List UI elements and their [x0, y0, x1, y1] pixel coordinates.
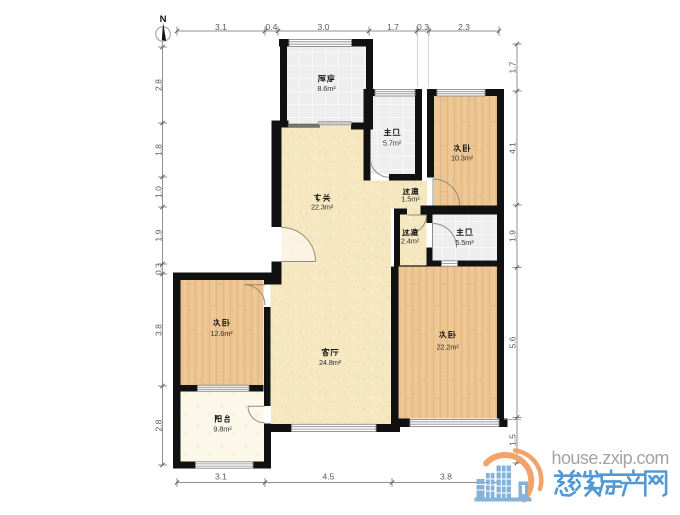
svg-text:3.1: 3.1	[215, 22, 227, 32]
svg-text:2.3: 2.3	[458, 22, 470, 32]
svg-text:house.zxip.com: house.zxip.com	[552, 448, 669, 468]
svg-text:3.8: 3.8	[154, 324, 164, 336]
svg-text:1.9: 1.9	[508, 230, 518, 242]
svg-text:2.8: 2.8	[154, 419, 164, 431]
svg-text:5.6: 5.6	[508, 336, 518, 348]
svg-text:0.4: 0.4	[266, 22, 278, 32]
svg-text:5.5m²: 5.5m²	[455, 238, 474, 247]
svg-text:8.6m²: 8.6m²	[317, 84, 336, 93]
svg-text:1.7: 1.7	[387, 22, 399, 32]
svg-text:1.9: 1.9	[154, 229, 164, 241]
svg-text:0.3: 0.3	[417, 22, 429, 32]
svg-text:3.0: 3.0	[318, 22, 330, 32]
svg-text:5.7m²: 5.7m²	[383, 139, 402, 148]
svg-text:2.8: 2.8	[154, 79, 164, 91]
svg-text:10.3m²: 10.3m²	[451, 153, 474, 162]
svg-text:3.8: 3.8	[440, 472, 452, 482]
svg-text:0.3: 0.3	[154, 263, 164, 275]
svg-text:1.8: 1.8	[154, 144, 164, 156]
svg-text:4.1: 4.1	[508, 142, 518, 154]
svg-text:12.6m²: 12.6m²	[210, 329, 233, 338]
svg-text:1.5: 1.5	[508, 434, 518, 446]
svg-text:3.1: 3.1	[215, 472, 227, 482]
svg-text:4.5: 4.5	[323, 472, 335, 482]
svg-text:22.2m²: 22.2m²	[436, 343, 459, 352]
svg-text:2.4m²: 2.4m²	[401, 237, 420, 246]
svg-text:1.0: 1.0	[154, 186, 164, 198]
svg-text:24.8m²: 24.8m²	[319, 358, 342, 367]
svg-text:9.8m²: 9.8m²	[213, 424, 232, 433]
svg-text:1.7: 1.7	[508, 61, 518, 73]
svg-text:22.3m²: 22.3m²	[311, 203, 334, 212]
svg-text:1.5m²: 1.5m²	[401, 195, 420, 204]
